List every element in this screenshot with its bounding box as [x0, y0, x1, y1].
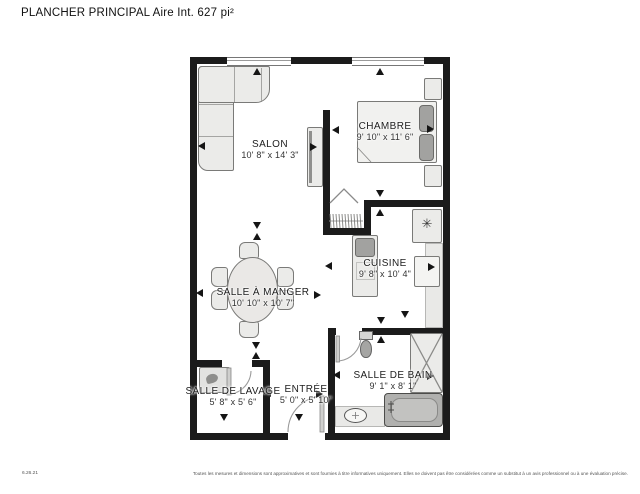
plan-date: 6.26.21: [22, 471, 38, 476]
room-name: ENTRÉE: [280, 384, 332, 395]
measurement-arrow-icon: [377, 336, 385, 343]
wall-bain-top-stub: [328, 328, 336, 335]
measurement-arrow-icon: [196, 289, 203, 297]
room-label-salle-a-manger: SALLE À MANGER 10' 10" x 10' 7": [217, 287, 310, 308]
measurement-arrow-icon: [252, 342, 260, 349]
room-dimensions: 9' 1" x 8' 1": [353, 381, 432, 391]
wall: [190, 433, 288, 440]
room-name: SALLE DE LAVAGE: [185, 386, 280, 397]
sofa-cushion-line: [199, 104, 233, 105]
pillow: [419, 134, 434, 161]
measurement-arrow-icon: [220, 414, 228, 421]
window: [227, 57, 291, 66]
measurement-arrow-icon: [376, 68, 384, 75]
measurement-arrow-icon: [401, 311, 409, 318]
closet-hangers-icon: [330, 214, 361, 228]
room-name: SALLE À MANGER: [217, 287, 310, 298]
measurement-arrow-icon: [310, 143, 317, 151]
door-leaf: [336, 336, 340, 362]
room-label-chambre: CHAMBRE 9' 10" x 11' 6": [357, 121, 414, 142]
room-dimensions: 9' 10" x 11' 6": [357, 132, 414, 142]
bathroom-sink: [344, 408, 367, 423]
room-label-salon: SALON 10' 8" x 14' 3": [241, 139, 298, 160]
measurement-arrow-icon: [253, 222, 261, 229]
room-dimensions: 10' 8" x 14' 3": [241, 150, 298, 160]
dining-chair: [239, 321, 259, 338]
room-label-entree: ENTRÉE 5' 0" x 5' 10": [280, 384, 332, 405]
floor-plan-page: { "header": { "title": "PLANCHER PRINCIP…: [0, 0, 640, 494]
wall: [325, 433, 450, 440]
measurement-arrow-icon: [295, 414, 303, 421]
plan-detail-overlay: [0, 0, 640, 494]
sofa-cushion-line: [234, 67, 235, 102]
wall-chambre-cuisine: [364, 200, 450, 207]
measurement-arrow-icon: [376, 190, 384, 197]
measurement-arrow-icon: [325, 262, 332, 270]
toilet-bowl: [360, 340, 372, 358]
measurement-arrow-icon: [333, 371, 340, 379]
sofa-cushion-line: [261, 68, 262, 101]
wall-salon-chambre: [323, 110, 330, 235]
dishwasher: [355, 238, 375, 257]
disclaimer-text: Toutes les mesures et dimensions sont ap…: [128, 471, 628, 476]
window: [352, 57, 424, 66]
door-swing-arc: [339, 338, 361, 361]
measurement-arrow-icon: [253, 233, 261, 240]
nightstand: [424, 78, 442, 100]
measurement-arrow-icon: [198, 142, 205, 150]
sofa-cushion-line: [199, 136, 233, 137]
room-name: CUISINE: [359, 258, 411, 269]
dining-chair: [211, 267, 228, 287]
toilet-tank: [359, 331, 373, 340]
measurement-arrow-icon: [428, 263, 435, 271]
room-name: CHAMBRE: [357, 121, 414, 132]
tv-screen: [309, 131, 312, 183]
measurement-arrow-icon: [314, 291, 321, 299]
wall: [190, 57, 197, 440]
room-label-salle-de-bain: SALLE DE BAIN 9' 1" x 8' 1": [353, 370, 432, 391]
measurement-arrow-icon: [252, 352, 260, 359]
room-dimensions: 9' 8" x 10' 4": [359, 269, 411, 279]
measurement-arrow-icon: [253, 68, 261, 75]
measurement-arrow-icon: [377, 317, 385, 324]
stove: [414, 256, 440, 287]
bifold-door-icon: [330, 189, 358, 203]
room-dimensions: 5' 8" x 5' 6": [185, 397, 280, 407]
bathtub-interior: [391, 398, 438, 422]
room-dimensions: 5' 0" x 5' 10": [280, 395, 332, 405]
dining-chair: [277, 267, 294, 287]
room-dimensions: 10' 10" x 10' 7": [217, 298, 310, 308]
wall: [291, 57, 352, 64]
measurement-arrow-icon: [376, 209, 384, 216]
wall-lavage-top-left: [190, 360, 222, 367]
fridge-snowflake-icon: ✳: [418, 217, 436, 231]
page-title: PLANCHER PRINCIPAL Aire Int. 627 pi²: [21, 7, 234, 19]
room-name: SALON: [241, 139, 298, 150]
measurement-arrow-icon: [427, 125, 434, 133]
wall: [443, 57, 450, 440]
measurement-arrow-icon: [332, 126, 339, 134]
room-name: SALLE DE BAIN: [353, 370, 432, 381]
room-label-salle-de-lavage: SALLE DE LAVAGE 5' 8" x 5' 6": [185, 386, 280, 407]
nightstand: [424, 165, 442, 187]
room-label-cuisine: CUISINE 9' 8" x 10' 4": [359, 258, 411, 279]
